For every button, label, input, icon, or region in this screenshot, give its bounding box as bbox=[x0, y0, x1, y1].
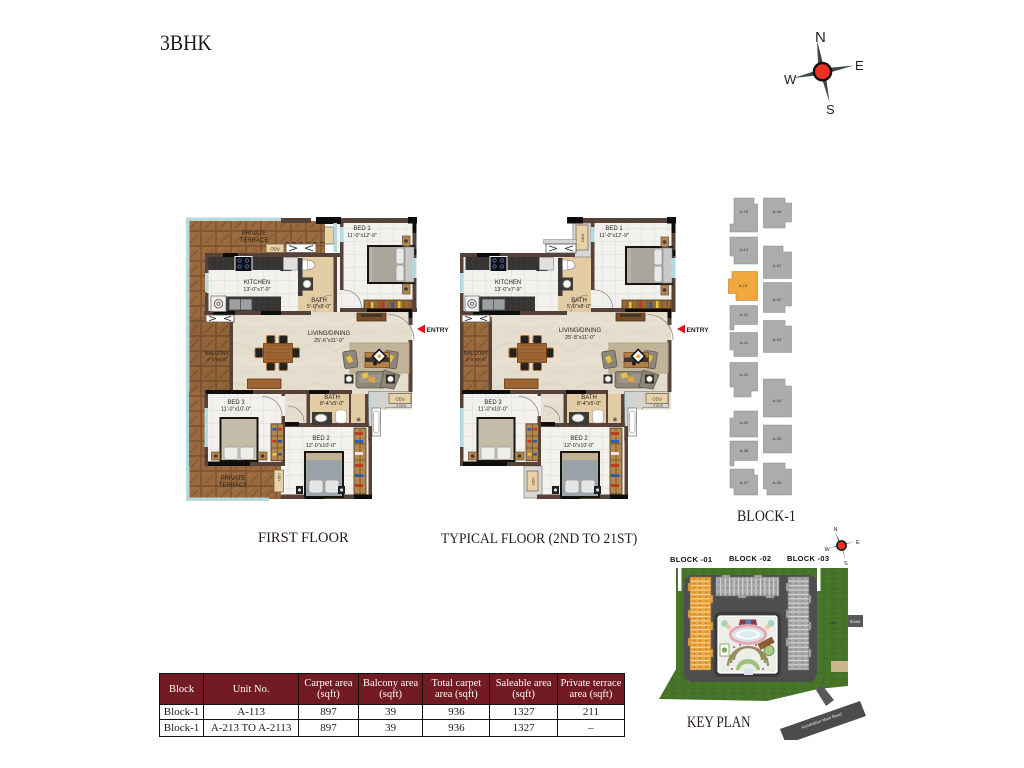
svg-text:2'X0'8: 2'X0'8 bbox=[396, 404, 405, 408]
svg-text:13'-0"x7'-9": 13'-0"x7'-9" bbox=[494, 287, 521, 293]
svg-text:LIVING/DINING: LIVING/DINING bbox=[308, 331, 351, 337]
svg-text:A-03: A-03 bbox=[773, 337, 782, 342]
svg-text:A-02: A-02 bbox=[773, 297, 782, 302]
svg-text:ODU: ODU bbox=[652, 397, 661, 402]
svg-text:25'-6"x11'-0": 25'-6"x11'-0" bbox=[314, 338, 344, 344]
svg-text:ODU: ODU bbox=[581, 234, 585, 243]
svg-text:BED 1: BED 1 bbox=[353, 226, 371, 232]
svg-text:KITCHEN: KITCHEN bbox=[244, 280, 270, 286]
svg-text:N: N bbox=[834, 527, 838, 533]
svg-text:ODU: ODU bbox=[532, 477, 536, 485]
svg-text:5'-0"x8'-0": 5'-0"x8'-0" bbox=[307, 304, 331, 310]
svg-text:BED 3: BED 3 bbox=[227, 400, 245, 406]
svg-text:PRIVATE: PRIVATE bbox=[221, 476, 246, 482]
svg-text:ENTRY: ENTRY bbox=[427, 327, 450, 334]
svg-text:5'-0"x8'-0": 5'-0"x8'-0" bbox=[567, 304, 591, 310]
svg-text:A-01: A-01 bbox=[773, 263, 782, 268]
svg-text:PRIVATE: PRIVATE bbox=[242, 231, 267, 237]
svg-text:11'-0"x12'-9": 11'-0"x12'-9" bbox=[599, 233, 629, 239]
svg-text:BED 2: BED 2 bbox=[570, 436, 588, 442]
svg-text:LIVING/DINING: LIVING/DINING bbox=[559, 328, 602, 334]
svg-text:OSR: OSR bbox=[829, 621, 837, 625]
svg-text:ODU: ODU bbox=[270, 247, 279, 252]
svg-text:S: S bbox=[826, 102, 835, 117]
svg-text:W: W bbox=[825, 547, 831, 553]
svg-text:11'-0"x12'-9": 11'-0"x12'-9" bbox=[347, 233, 377, 239]
svg-text:TERRACE: TERRACE bbox=[219, 483, 248, 489]
svg-text:2'X0'8: 2'X0'8 bbox=[653, 404, 662, 408]
svg-text:A-05: A-05 bbox=[773, 436, 782, 441]
svg-text:4'-0"x9'-8": 4'-0"x9'-8" bbox=[207, 357, 228, 362]
svg-text:BED 2: BED 2 bbox=[312, 436, 330, 442]
svg-text:E: E bbox=[855, 58, 864, 73]
svg-text:A-11: A-11 bbox=[740, 340, 749, 345]
svg-text:TERRACE: TERRACE bbox=[240, 238, 269, 244]
svg-text:S: S bbox=[844, 561, 848, 567]
svg-text:A-04: A-04 bbox=[773, 398, 782, 403]
svg-text:A-06: A-06 bbox=[773, 480, 782, 485]
svg-text:11'-0"x10'-0": 11'-0"x10'-0" bbox=[478, 407, 508, 413]
svg-text:12'-0"x10'-0": 12'-0"x10'-0" bbox=[564, 443, 594, 449]
svg-text:25'-8"x11'-0": 25'-8"x11'-0" bbox=[565, 335, 595, 341]
svg-text:N: N bbox=[815, 29, 826, 46]
svg-text:KITCHEN: KITCHEN bbox=[495, 280, 521, 286]
svg-text:A-16: A-16 bbox=[773, 209, 782, 214]
svg-text:13'-0"x7'-9": 13'-0"x7'-9" bbox=[243, 287, 270, 293]
svg-text:BED 3: BED 3 bbox=[484, 400, 502, 406]
svg-text:11'-0"x10'-0": 11'-0"x10'-0" bbox=[221, 407, 251, 413]
svg-text:8'-4"x5'-0": 8'-4"x5'-0" bbox=[320, 401, 344, 407]
svg-text:A-07: A-07 bbox=[740, 480, 749, 485]
svg-text:A-08: A-08 bbox=[740, 448, 749, 453]
svg-text:W: W bbox=[784, 72, 797, 87]
svg-text:ODU: ODU bbox=[395, 397, 404, 402]
svg-text:A-15: A-15 bbox=[740, 209, 749, 214]
svg-text:ROAD: ROAD bbox=[850, 620, 861, 624]
svg-text:ENTRY: ENTRY bbox=[687, 327, 710, 334]
svg-text:8'-4"x5'-0": 8'-4"x5'-0" bbox=[577, 401, 601, 407]
svg-text:A-13: A-13 bbox=[739, 283, 748, 288]
svg-text:ODU: ODU bbox=[278, 473, 282, 481]
svg-text:4'-0"x9'-8": 4'-0"x9'-8" bbox=[466, 357, 487, 362]
svg-text:A-12: A-12 bbox=[740, 312, 749, 317]
svg-text:12'-0"x10'-0": 12'-0"x10'-0" bbox=[306, 443, 336, 449]
svg-text:A-14: A-14 bbox=[740, 247, 749, 252]
svg-text:A-09: A-09 bbox=[740, 420, 749, 425]
svg-text:BED 1: BED 1 bbox=[605, 226, 623, 232]
svg-text:A-10: A-10 bbox=[740, 372, 749, 377]
svg-text:E: E bbox=[856, 540, 860, 546]
